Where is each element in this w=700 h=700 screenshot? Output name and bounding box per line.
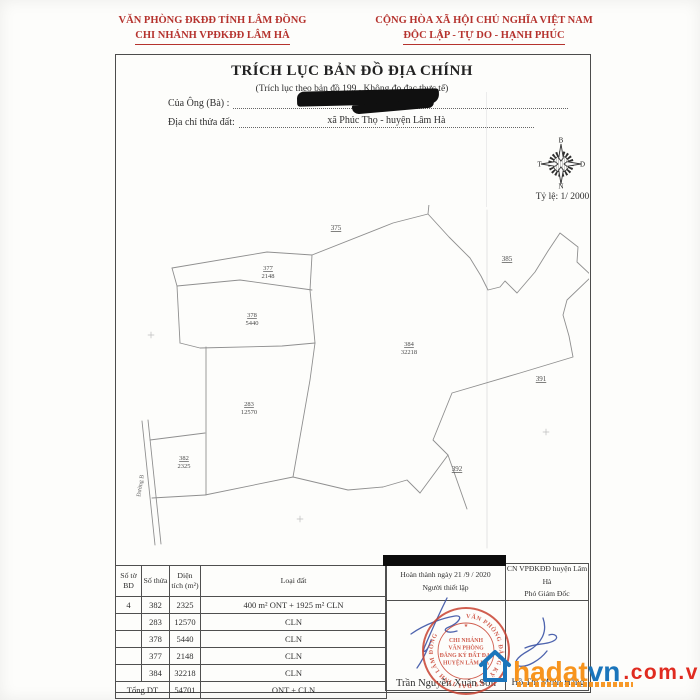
total-area: 54701 [170,682,201,699]
compass-south-label: N [558,183,563,190]
total-label: Tổng DT [116,682,170,699]
map-svg: 3772148378544038432218283125703822325375… [115,205,589,550]
parcel-number-label: 384 [404,341,415,348]
owner-label: Của Ông (Bà) : [168,98,233,109]
letterhead-issuer: VĂN PHÒNG ĐKĐĐ TỈNH LÂM ĐỒNG CHI NHÁNH V… [95,13,330,45]
table-total-row: Tổng DT 54701 ONT + CLN [116,682,387,699]
redaction-bar [383,555,506,566]
parcel-number-label: 382 [179,455,189,462]
compass-north-label: B [559,137,564,145]
total-type: ONT + CLN [201,682,387,699]
parcel-number-label: 283 [244,401,254,408]
parcel-area-label: 12570 [241,409,257,416]
table-row: 3772148CLN [116,648,387,665]
compass-east-label: D [580,161,585,169]
compass-rose-icon: B N T D [536,137,586,189]
road-label: Đường B [136,474,145,497]
parcel-table-body: 43822325400 m² ONT + 1925 m² CLN28312570… [116,597,387,682]
national-line1: CỘNG HÒA XÃ HỘI CHỦ NGHĨA VIỆT NAM [363,13,605,28]
watermark-text-main: hadat [513,661,588,683]
col-dien-tich: Diện tích (m²) [170,566,201,597]
office-name: CN VPĐKĐĐ huyện Lâm Hà [506,563,588,589]
neighbor-parcel-label: 375 [331,224,342,232]
document-page: VĂN PHÒNG ĐKĐĐ TỈNH LÂM ĐỒNG CHI NHÁNH V… [0,0,700,700]
watermark-logo: hadat vn .com.vn [477,645,700,683]
parcel-number-label: 378 [247,312,257,319]
compass-west-label: T [537,161,542,169]
table-row: 43822325400 m² ONT + 1925 m² CLN [116,597,387,614]
neighbor-parcel-label: 391 [536,375,547,383]
table-header-row: Số tờ BD Số thửa Diện tích (m²) Loại đất [116,566,387,597]
national-line2: ĐỘC LẬP - TỰ DO - HẠNH PHÚC [403,28,564,45]
watermark-text-domain: .com.vn [623,664,700,683]
issuer-line1: VĂN PHÒNG ĐKĐĐ TỈNH LÂM ĐỒNG [95,13,330,28]
watermark-tagline [517,682,633,687]
parcel-area-label: 5440 [246,320,259,327]
scan-fold-line [486,92,487,207]
parcel-area-label: 2148 [262,273,275,280]
neighbor-parcel-label: 385 [502,255,513,263]
house-icon [477,645,513,683]
table-row: 38432218CLN [116,665,387,682]
col-so-to-bd: Số tờ BD [116,566,142,597]
parcel-area-label: 2325 [178,463,191,470]
parcel-area-label: 32218 [401,349,417,356]
neighbor-parcel-label: 392 [452,465,463,473]
col-so-thua: Số thửa [142,566,170,597]
map-scale-label: Tỷ lệ: 1/ 2000 [520,192,605,202]
stamp-line1: CHI NHÁNH [449,636,483,644]
address-field: Địa chỉ thửa đất: xã Phúc Thọ - huyện Lâ… [168,114,534,128]
page-title: TRÍCH LỤC BẢN ĐỒ ĐỊA CHÍNH [115,63,589,80]
parcel-number-label: 377 [263,265,274,272]
stamp-star: ★ [464,623,469,629]
parcel-table: Số tờ BD Số thửa Diện tích (m²) Loại đất… [115,565,387,699]
table-row: 3785440CLN [116,631,387,648]
address-value: xã Phúc Thọ - huyện Lâm Hà [239,114,534,128]
letterhead-national: CỘNG HÒA XÃ HỘI CHỦ NGHĨA VIỆT NAM ĐỘC L… [363,13,605,45]
col-loai-dat: Loại đất [201,566,387,597]
issuer-line2: CHI NHÁNH VPĐKĐĐ LÂM HÀ [135,28,289,45]
watermark-text-vn: vn [588,661,621,683]
address-label: Địa chỉ thửa đất: [168,117,239,128]
table-row: 28312570CLN [116,614,387,631]
completion-date: Hoàn thành ngày 21 /9 / 2020 [386,569,505,582]
